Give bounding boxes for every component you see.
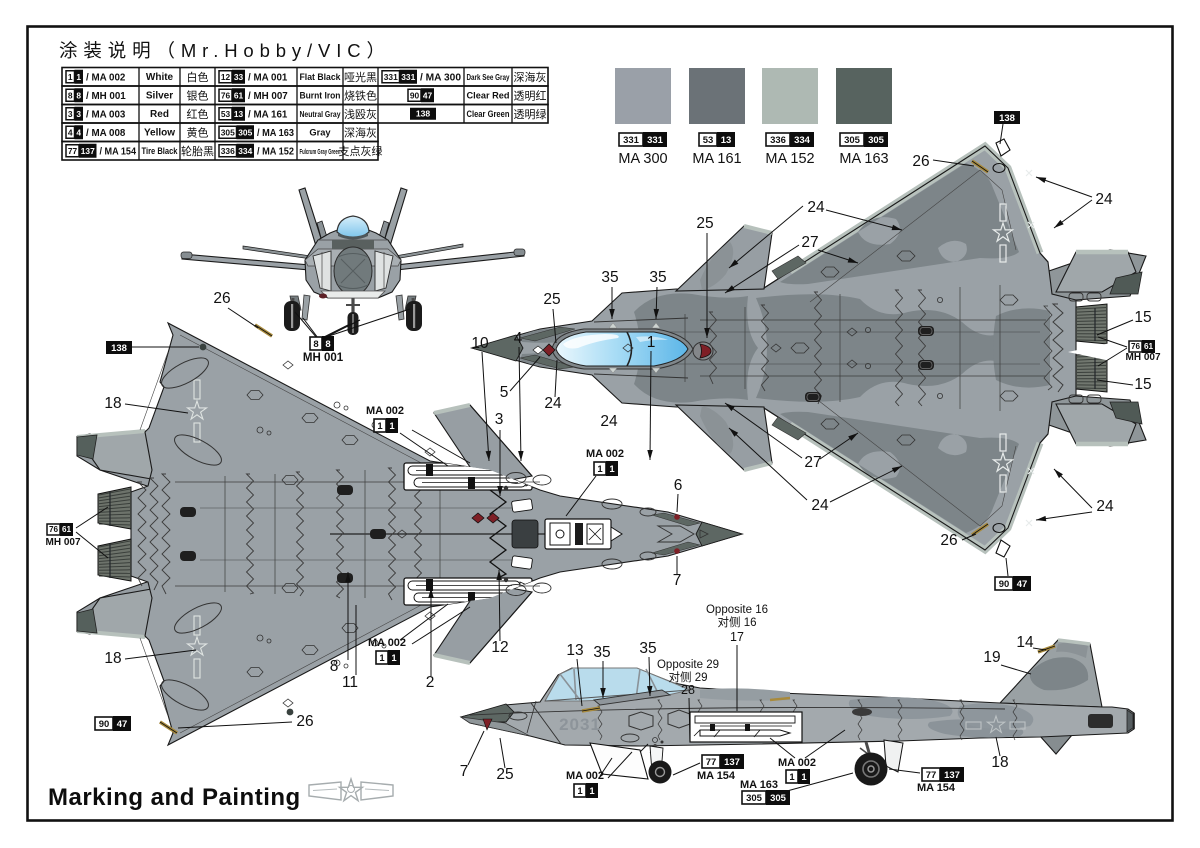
svg-text:1: 1 [647,334,656,351]
svg-text:17: 17 [730,630,744,644]
svg-text:27: 27 [801,234,818,251]
svg-text:/ MH 007: / MH 007 [248,91,288,102]
svg-text:15: 15 [1134,309,1151,326]
svg-text:白色: 白色 [187,70,209,84]
svg-text:35: 35 [593,644,610,661]
svg-text:305: 305 [238,127,252,137]
svg-text:MA 152: MA 152 [765,151,814,167]
svg-text:MA 002: MA 002 [586,448,624,460]
svg-text:28: 28 [681,683,695,697]
svg-text:2031: 2031 [559,715,601,734]
svg-text:47: 47 [423,90,433,100]
svg-text:8: 8 [68,90,73,100]
svg-text:/ MA 154: / MA 154 [100,147,137,158]
svg-text:透明绿: 透明绿 [514,107,547,121]
svg-text:77: 77 [68,146,78,156]
svg-text:Clear Red: Clear Red [467,90,510,100]
svg-text:深海灰: 深海灰 [344,125,377,139]
svg-text:6: 6 [674,477,683,494]
svg-text:77: 77 [706,757,717,768]
svg-text:1: 1 [577,786,583,797]
svg-text:24: 24 [544,395,562,412]
svg-text:Neutral Gray: Neutral Gray [300,109,341,119]
svg-text:3: 3 [76,109,81,119]
svg-text:MA 154: MA 154 [917,782,956,794]
svg-text:138: 138 [999,113,1015,124]
svg-text:76: 76 [49,525,59,534]
svg-text:11: 11 [342,674,358,691]
svg-text:24: 24 [1096,498,1114,515]
svg-text:13: 13 [566,642,583,659]
svg-text:1: 1 [789,772,795,783]
svg-text:334: 334 [794,135,811,146]
svg-text:1: 1 [377,421,383,432]
svg-text:/ MH 001: / MH 001 [86,91,126,102]
svg-text:15: 15 [1134,376,1151,393]
svg-text:33: 33 [234,72,244,82]
svg-text:53: 53 [221,109,231,119]
svg-text:13: 13 [721,135,732,146]
svg-text:MA 163: MA 163 [740,779,778,791]
svg-text:305: 305 [746,793,763,804]
svg-text:3: 3 [495,411,504,428]
svg-text:深海灰: 深海灰 [514,70,547,84]
svg-text:黄色: 黄色 [187,125,209,139]
svg-text:61: 61 [234,90,244,100]
svg-text:35: 35 [639,640,656,657]
svg-text:76: 76 [221,90,231,100]
svg-text:334: 334 [238,146,252,156]
svg-text:/ MA 002: / MA 002 [86,73,126,84]
svg-text:7: 7 [673,572,682,589]
svg-text:336: 336 [221,146,235,156]
svg-text:137: 137 [944,770,960,781]
svg-text:138: 138 [416,109,431,119]
svg-text:1: 1 [76,72,81,82]
svg-text:13: 13 [234,109,244,119]
svg-text:3: 3 [68,109,73,119]
svg-text:10: 10 [471,335,489,352]
svg-text:35: 35 [649,269,666,286]
svg-text:MA 002: MA 002 [368,637,406,649]
svg-text:35: 35 [601,269,618,286]
svg-text:331: 331 [623,135,640,146]
svg-text:77: 77 [926,770,937,781]
svg-text:MA 300: MA 300 [618,151,667,167]
svg-text:8: 8 [313,339,318,350]
svg-text:24: 24 [1095,191,1113,208]
svg-text:烧铁色: 烧铁色 [344,88,377,102]
svg-text:浅殴灰: 浅殴灰 [344,107,377,121]
svg-text:8: 8 [325,339,330,350]
svg-text:19: 19 [983,649,1000,666]
svg-text:137: 137 [81,146,95,156]
svg-text:MA 161: MA 161 [692,151,741,167]
svg-text:18: 18 [991,754,1008,771]
svg-text:MH 007: MH 007 [1125,352,1160,363]
svg-text:7: 7 [460,763,469,780]
svg-text:MH 007: MH 007 [45,537,80,548]
svg-text:24: 24 [807,199,825,216]
svg-text:2: 2 [426,674,435,691]
svg-text:MA 154: MA 154 [697,770,736,782]
svg-text:Marking and Painting: Marking and Painting [48,784,301,811]
svg-text:336: 336 [770,135,786,146]
svg-text:8: 8 [76,90,81,100]
svg-text:137: 137 [724,757,740,768]
svg-text:61: 61 [62,525,72,534]
svg-text:47: 47 [117,719,128,730]
svg-text:12: 12 [221,72,231,82]
svg-text:18: 18 [104,395,121,412]
svg-text:138: 138 [111,343,127,354]
svg-text:18: 18 [104,650,121,667]
svg-text:1: 1 [609,464,615,475]
svg-text:331: 331 [401,72,415,82]
svg-text:Dark See Gray: Dark See Gray [467,72,510,82]
svg-text:90: 90 [999,579,1010,590]
svg-text:透明红: 透明红 [514,89,547,102]
svg-text:Gray: Gray [309,127,331,137]
svg-text:MH 001: MH 001 [303,352,344,364]
svg-text:331: 331 [384,72,398,82]
svg-text:轮胎黑: 轮胎黑 [181,144,214,158]
svg-text:Opposite 29: Opposite 29 [657,659,719,671]
svg-text:Fulcrum Gray Green: Fulcrum Gray Green [300,149,341,156]
svg-text:26: 26 [940,532,957,549]
svg-text:25: 25 [696,215,713,232]
svg-text:MA 002: MA 002 [778,757,816,769]
svg-text:305: 305 [221,127,235,137]
svg-text:1: 1 [391,653,397,664]
svg-text:1: 1 [379,653,385,664]
svg-text:MA 002: MA 002 [366,405,404,417]
svg-text:红色: 红色 [187,107,209,121]
svg-text:61: 61 [1144,342,1154,351]
svg-text:4: 4 [76,127,81,137]
svg-text:Silver: Silver [146,90,173,101]
svg-text:对侧 29: 对侧 29 [669,670,708,684]
svg-text:305: 305 [868,135,885,146]
svg-text:/ MA 163: / MA 163 [257,128,295,139]
svg-text:53: 53 [703,135,714,146]
svg-text:305: 305 [770,793,787,804]
svg-text:1: 1 [801,772,807,783]
svg-text:25: 25 [496,766,513,783]
svg-text:/ MA 152: / MA 152 [257,147,295,158]
svg-text:/ MA 003: / MA 003 [86,110,126,121]
svg-text:24: 24 [600,413,618,430]
svg-text:MA 163: MA 163 [839,151,888,167]
svg-text:对侧 16: 对侧 16 [718,615,757,629]
svg-text:MA 002: MA 002 [566,770,604,782]
svg-text:Clear Green: Clear Green [467,109,510,119]
svg-text:14: 14 [1016,634,1034,651]
svg-text:/ MA 001: / MA 001 [248,73,288,84]
svg-text:8: 8 [330,658,339,675]
svg-text:涂装说明（Mr.Hobby/VIC）: 涂装说明（Mr.Hobby/VIC） [59,40,385,61]
svg-text:Yellow: Yellow [144,127,175,138]
svg-text:26: 26 [213,290,230,307]
svg-text:4: 4 [68,127,73,137]
svg-text:Opposite 16: Opposite 16 [706,604,768,616]
svg-text:Tire Black: Tire Black [142,146,179,156]
svg-text:1: 1 [68,72,73,82]
svg-text:25: 25 [543,291,560,308]
svg-text:76: 76 [1131,342,1141,351]
svg-text:Red: Red [150,109,169,120]
svg-text:/ MA 161: / MA 161 [248,110,288,121]
svg-text:/ MA 300: / MA 300 [420,73,462,84]
svg-text:12: 12 [491,639,508,656]
svg-text:White: White [146,72,174,83]
svg-text:银色: 银色 [187,88,209,102]
svg-text:27: 27 [804,454,821,471]
svg-text:26: 26 [296,713,313,730]
svg-text:支点灰绿: 支点灰绿 [339,144,383,158]
svg-text:305: 305 [844,135,861,146]
svg-text:47: 47 [1017,579,1028,590]
svg-text:Flat Black: Flat Black [300,72,342,82]
svg-text:90: 90 [410,90,420,100]
svg-text:331: 331 [647,135,664,146]
svg-text:4: 4 [514,330,523,347]
svg-text:26: 26 [912,153,929,170]
svg-text:1: 1 [589,786,595,797]
svg-text:Burnt Iron: Burnt Iron [300,90,341,100]
svg-text:哑光黑: 哑光黑 [344,70,377,84]
svg-text:/ MA 008: / MA 008 [86,128,126,139]
svg-text:24: 24 [811,497,829,514]
svg-text:1: 1 [389,421,395,432]
svg-text:1: 1 [597,464,603,475]
svg-text:5: 5 [500,384,509,401]
svg-text:90: 90 [99,719,110,730]
